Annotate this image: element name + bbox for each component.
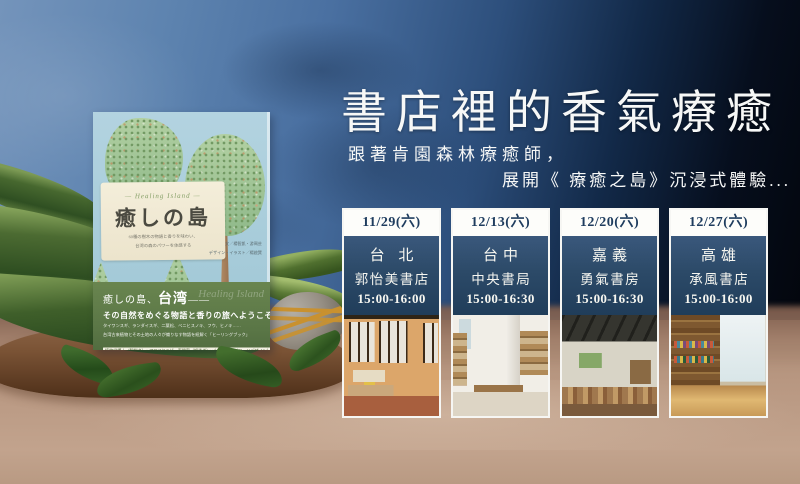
event-date: 11/29(六) bbox=[344, 210, 439, 236]
event-info: 高雄 承風書店 15:00-16:00 bbox=[671, 236, 766, 315]
obi-lead-text: 癒しの島、 bbox=[103, 295, 158, 306]
cover-tagline-2: 台湾の森のパワーを体感する bbox=[135, 244, 191, 250]
obi-boxed-credit: 植物学博士（解説者）× アロマセラピー専門家（調香者）× 山岳ガイド（ロードデザ… bbox=[103, 347, 270, 350]
book-front-cover: — Healing Island — 癒しの島 60種の樹木の物語と香りを味わい… bbox=[93, 112, 270, 350]
credit-line-1: 文／楊智凱・游珮芸 bbox=[209, 241, 262, 247]
event-info: 台中 中央書局 15:00-16:30 bbox=[453, 236, 548, 315]
credit-line-2: デザイン・イラスト／楊啟巽 bbox=[209, 250, 262, 256]
event-bookstore: 承風書店 bbox=[689, 268, 749, 288]
event-time: 15:00-16:00 bbox=[357, 291, 425, 307]
event-card-taipei: 11/29(六) 台 北 郭怡美書店 15:00-16:00 bbox=[342, 208, 441, 418]
event-city: 高雄 bbox=[701, 244, 741, 265]
event-date: 12/13(六) bbox=[453, 210, 548, 236]
event-time: 15:00-16:30 bbox=[466, 291, 534, 307]
event-card-row: 11/29(六) 台 北 郭怡美書店 15:00-16:00 12/13(六) … bbox=[342, 208, 768, 418]
event-date: 12/27(六) bbox=[671, 210, 766, 236]
event-info: 嘉義 勇氣書房 15:00-16:30 bbox=[562, 236, 657, 315]
obi-lead-taiwan: 台湾 bbox=[158, 292, 188, 307]
event-card-kaohsiung: 12/27(六) 高雄 承風書店 15:00-16:00 bbox=[669, 208, 768, 418]
book-healing-island: — Healing Island — 癒しの島 60種の樹木の物語と香りを味わい… bbox=[93, 112, 270, 350]
obi-watermark-script: Healing Island bbox=[198, 288, 264, 300]
event-time: 15:00-16:00 bbox=[684, 291, 752, 307]
bookstore-photo-kuo-yi-mei bbox=[344, 315, 439, 416]
event-bookstore: 郭怡美書店 bbox=[355, 268, 430, 288]
event-time: 15:00-16:30 bbox=[575, 291, 643, 307]
book-title: 癒しの島 bbox=[115, 201, 211, 232]
event-city: 台中 bbox=[483, 244, 523, 265]
event-city: 嘉義 bbox=[592, 244, 632, 265]
bookstore-photo-cheng-feng bbox=[671, 315, 766, 416]
event-card-taichung: 12/13(六) 台中 中央書局 15:00-16:30 bbox=[451, 208, 550, 418]
obi-detail-1: タイワンスギ、ランダイスギ、二葉松、ベニヒスノキ、フウ、ヒノキ…… bbox=[103, 323, 213, 329]
obi-detail-2: 台湾古来植物とその土地の人々が織りなす物語を紐解く「ヒーリングブック」 bbox=[103, 333, 213, 339]
book-obi-band: Healing Island 癒しの島、台湾—— その自然をめぐる物語と香りの旅… bbox=[93, 282, 270, 350]
bookstore-photo-central-bookstore bbox=[453, 315, 548, 416]
author-credits: 文／楊智凱・游珮芸 デザイン・イラスト／楊啟巽 bbox=[184, 240, 262, 258]
event-date: 12/20(六) bbox=[562, 210, 657, 236]
event-bookstore: 勇氣書房 bbox=[580, 268, 640, 288]
promo-banner: — Healing Island — 癒しの島 60種の樹木の物語と香りを味わい… bbox=[0, 0, 800, 484]
obi-welcome-line: その自然をめぐる物語と香りの旅へようこそ! bbox=[103, 310, 260, 321]
event-city: 台 北 bbox=[370, 244, 419, 265]
event-bookstore: 中央書局 bbox=[471, 268, 531, 288]
cover-script-title: — Healing Island — bbox=[125, 191, 201, 200]
event-card-chiayi: 12/20(六) 嘉義 勇氣書房 15:00-16:30 bbox=[560, 208, 659, 418]
bookstore-photo-courage-books bbox=[562, 315, 657, 416]
event-info: 台 北 郭怡美書店 15:00-16:00 bbox=[344, 236, 439, 315]
